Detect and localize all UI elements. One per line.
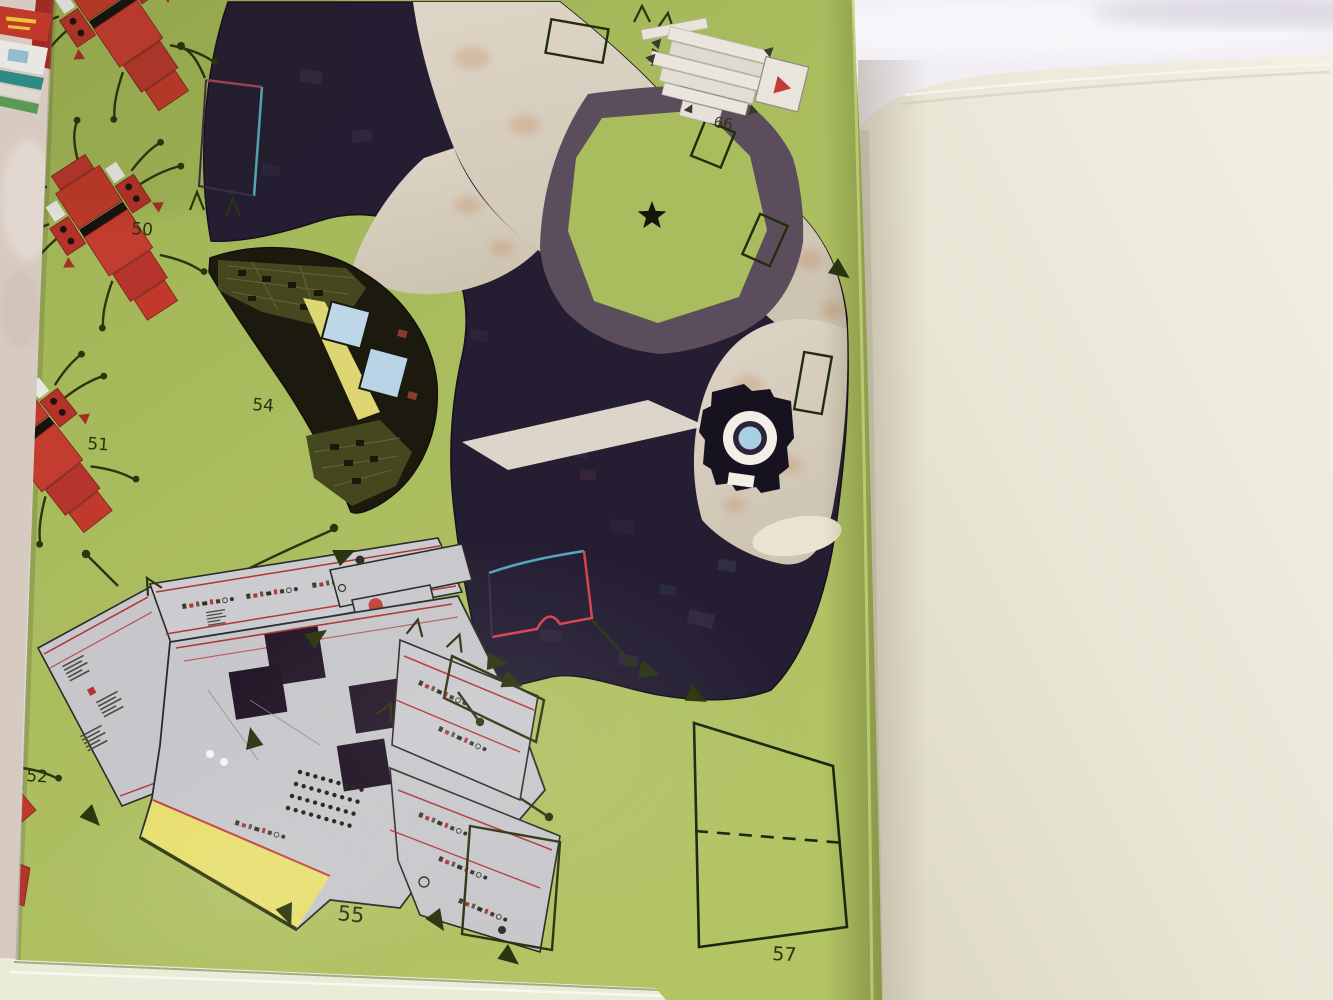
right-page-blank	[858, 56, 1333, 1000]
part-number-54: 54	[252, 395, 275, 416]
part-number-52: 52	[26, 766, 49, 787]
part-number-50: 50	[131, 219, 154, 240]
left-page: 50 51 52 54 55 57 66	[0, 0, 884, 1000]
part-number-51: 51	[87, 434, 110, 455]
papercraft-book-photo: 50 51 52 54 55 57 66	[0, 0, 1333, 1000]
part-number-57: 57	[772, 943, 797, 966]
photo-canvas: 50 51 52 54 55 57 66	[0, 0, 1333, 1000]
part-number-66: 66	[712, 113, 733, 133]
